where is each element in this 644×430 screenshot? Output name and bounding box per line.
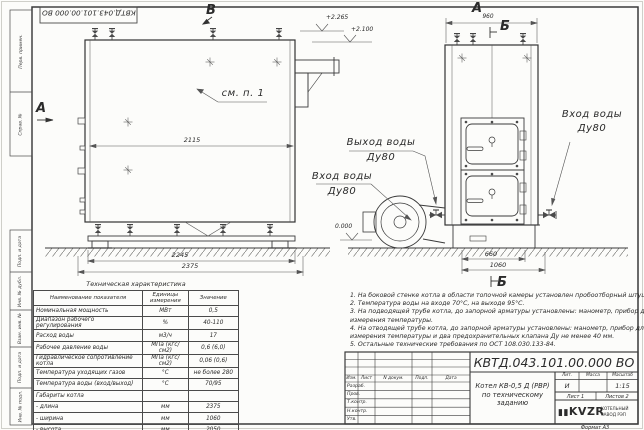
water-outlet-label: Выход воды: [346, 138, 416, 149]
spec-cell: м3/ч: [143, 330, 189, 341]
spec-cell: Рабочее давление воды: [34, 341, 143, 354]
frame-label-perv: Перв. примен.: [10, 10, 32, 92]
drawing-sheet: КВТД.043.101.00.000 ВО Перв. примен. Спр…: [0, 0, 644, 430]
note-line: 1. На боковой стенке котла в области топ…: [350, 292, 640, 300]
water-inlet-mid-dn: Ду80: [310, 187, 374, 198]
view-label-b-top: В: [206, 4, 216, 18]
water-inlet-mid-label: Вход воды: [310, 172, 374, 183]
frame-label-vzam: Взам. инв. №: [10, 310, 32, 347]
titleblock-masshtab-header: Масштаб: [607, 373, 638, 378]
see-note-callout: см. п. 1: [216, 89, 270, 100]
titleblock-masshtab-value: 1:15: [607, 382, 638, 390]
titleblock-row-prov: Пров.: [347, 392, 360, 397]
spec-cell: - высота: [34, 424, 143, 430]
titleblock-row-razrab: Разраб.: [347, 384, 365, 389]
spec-cell: Диапазон рабочего регулирования: [34, 317, 143, 330]
titleblock-col-data: Дата: [432, 376, 470, 381]
titleblock-title-line1: Котел КВ-0,5 Д (РВР): [472, 382, 553, 390]
frame-label-podp1: Подп. и дата: [10, 230, 32, 272]
titleblock-row-tkontr: Т.контр.: [347, 400, 367, 405]
titleblock-doc-number: КВТД.043.101.00.000 ВО: [470, 355, 638, 370]
water-inlet-right-label: Вход воды: [556, 110, 628, 121]
notes-block: 1. На боковой стенке котла в области топ…: [350, 292, 640, 349]
spec-cell: 1060: [188, 413, 238, 424]
table-row: Габариты котла: [34, 390, 239, 401]
frame-label-inv-podl: Инв. № подл.: [10, 388, 32, 425]
titleblock-col-izm: Изм.: [345, 376, 358, 381]
elev-2100: +2.100: [351, 27, 373, 33]
dim-660: 660: [477, 251, 505, 258]
titleblock-lit-header: Лит.: [555, 373, 579, 378]
spec-cell: Температура уходящих газов: [34, 367, 143, 378]
spec-cell: мм: [143, 413, 189, 424]
table-row: Гидравлическое сопротивление котлаМПа (к…: [34, 354, 239, 367]
titleblock-list: Лист 1: [555, 394, 596, 400]
titleblock-col-ndoc: N докум.: [375, 376, 412, 381]
spec-cell: 70/95: [188, 379, 238, 390]
spec-cell: [188, 390, 238, 401]
spec-cell: Температура воды (вход/выход): [34, 379, 143, 390]
table-row: - длинамм2375: [34, 401, 239, 412]
spec-cell: Расход воды: [34, 330, 143, 341]
spec-cell: 2050: [188, 424, 238, 430]
spec-cell: [143, 390, 189, 401]
titleblock-lit-value: И: [555, 382, 579, 390]
titleblock-massa-header: Масса: [579, 373, 607, 378]
spec-cell: МПа (кгс/см2): [143, 341, 189, 354]
spec-cell: мм: [143, 424, 189, 430]
table-row: Диапазон рабочего регулирования%40-110: [34, 317, 239, 330]
note-line: 3. На подводящей трубе котла, до запорно…: [350, 308, 640, 316]
spec-cell: не более 280: [188, 367, 238, 378]
table-row: Номинальная мощностьМВт0,5: [34, 306, 239, 317]
kvzr-logo-sub1: КОТЕЛЬНЫЙ: [601, 406, 628, 411]
spec-cell: 0,06 (0,6): [188, 354, 238, 367]
dim-2245: 2245: [163, 252, 197, 259]
titleblock-listov: Листов 2: [596, 394, 638, 400]
water-outlet-dn: Ду80: [346, 153, 416, 164]
titleblock-col-podp: Подп.: [412, 376, 432, 381]
table-row: - ширинамм1060: [34, 413, 239, 424]
view-label-a-left: А: [36, 102, 46, 116]
water-inlet-right-dn: Ду80: [556, 124, 628, 135]
spec-cell: МПа (кгс/см2): [143, 354, 189, 367]
spec-cell: %: [143, 317, 189, 330]
frame-label-podp2: Подп. и дата: [10, 347, 32, 388]
spec-cell: Номинальная мощность: [34, 306, 143, 317]
spec-header-row: Наименование показателя Единицы измерени…: [34, 291, 239, 306]
view-label-b-right: Б: [500, 20, 510, 34]
note-line: 5. Остальные технические требования по О…: [350, 341, 640, 349]
table-row: Расход водым3/ч17: [34, 330, 239, 341]
spec-cell: 40-110: [188, 317, 238, 330]
spec-cell: мм: [143, 401, 189, 412]
kvzr-logo-sub2: ЗАВОД РЭП: [601, 412, 626, 417]
note-line: измерения температуры.: [350, 317, 640, 325]
titleblock-row-utv: Утв.: [347, 417, 357, 422]
spec-cell: МВт: [143, 306, 189, 317]
table-row: Температура воды (вход/выход)°С70/95: [34, 379, 239, 390]
spec-col-units: Единицы измерения: [143, 291, 189, 306]
frame-label-sprav: Справ. №: [10, 92, 32, 156]
kvzr-logo-text: KVZR: [569, 405, 604, 418]
dim-1060: 1060: [483, 262, 513, 269]
spec-cell: 0,5: [188, 306, 238, 317]
spec-cell: 2375: [188, 401, 238, 412]
frame-label-inv-dubl: Инв. № дубл.: [10, 272, 32, 310]
elev-0000: 0.000: [335, 224, 352, 230]
kvzr-logo: ▮▮KVZR: [558, 405, 604, 418]
dim-2115: 2115: [175, 137, 209, 144]
spec-table-title: Техническая характеристика: [33, 281, 239, 288]
spec-cell: °С: [143, 367, 189, 378]
dim-960: 960: [475, 14, 501, 20]
table-row: - высотамм2050: [34, 424, 239, 430]
note-line: измерения температуры и два предохраните…: [350, 333, 640, 341]
note-line: 4. На отводящей трубе котла, до запорной…: [350, 325, 640, 333]
spec-cell: - длина: [34, 401, 143, 412]
spec-cell: 0,6 (6,0): [188, 341, 238, 354]
titleblock-title-line2: по техническому заданию: [472, 391, 553, 407]
spec-cell: 17: [188, 330, 238, 341]
top-doc-number-text: КВТД.043.101.00.000 ВО: [42, 9, 136, 17]
elev-2265: +2.265: [326, 15, 348, 21]
spec-col-value: Значение: [188, 291, 238, 306]
titleblock-row-nkontr: Н.контр.: [347, 409, 368, 414]
spec-cell: °С: [143, 379, 189, 390]
table-row: Температура уходящих газов°Сне более 280: [34, 367, 239, 378]
kvzr-logo-mark: ▮▮: [558, 408, 569, 418]
top-doc-number: КВТД.043.101.00.000 ВО: [40, 9, 137, 17]
spec-cell: Габариты котла: [34, 390, 143, 401]
spec-table: Наименование показателя Единицы измерени…: [33, 290, 239, 430]
spec-col-name: Наименование показателя: [34, 291, 143, 306]
spec-cell: Гидравлическое сопротивление котла: [34, 354, 143, 367]
dim-2375: 2375: [173, 263, 207, 270]
spec-cell: - ширина: [34, 413, 143, 424]
section-label-b: Б: [497, 276, 507, 290]
titleblock-col-list: Лист: [358, 376, 375, 381]
format-label: Формат А3: [565, 425, 625, 430]
table-row: Рабочее давление водыМПа (кгс/см2)0,6 (6…: [34, 341, 239, 354]
